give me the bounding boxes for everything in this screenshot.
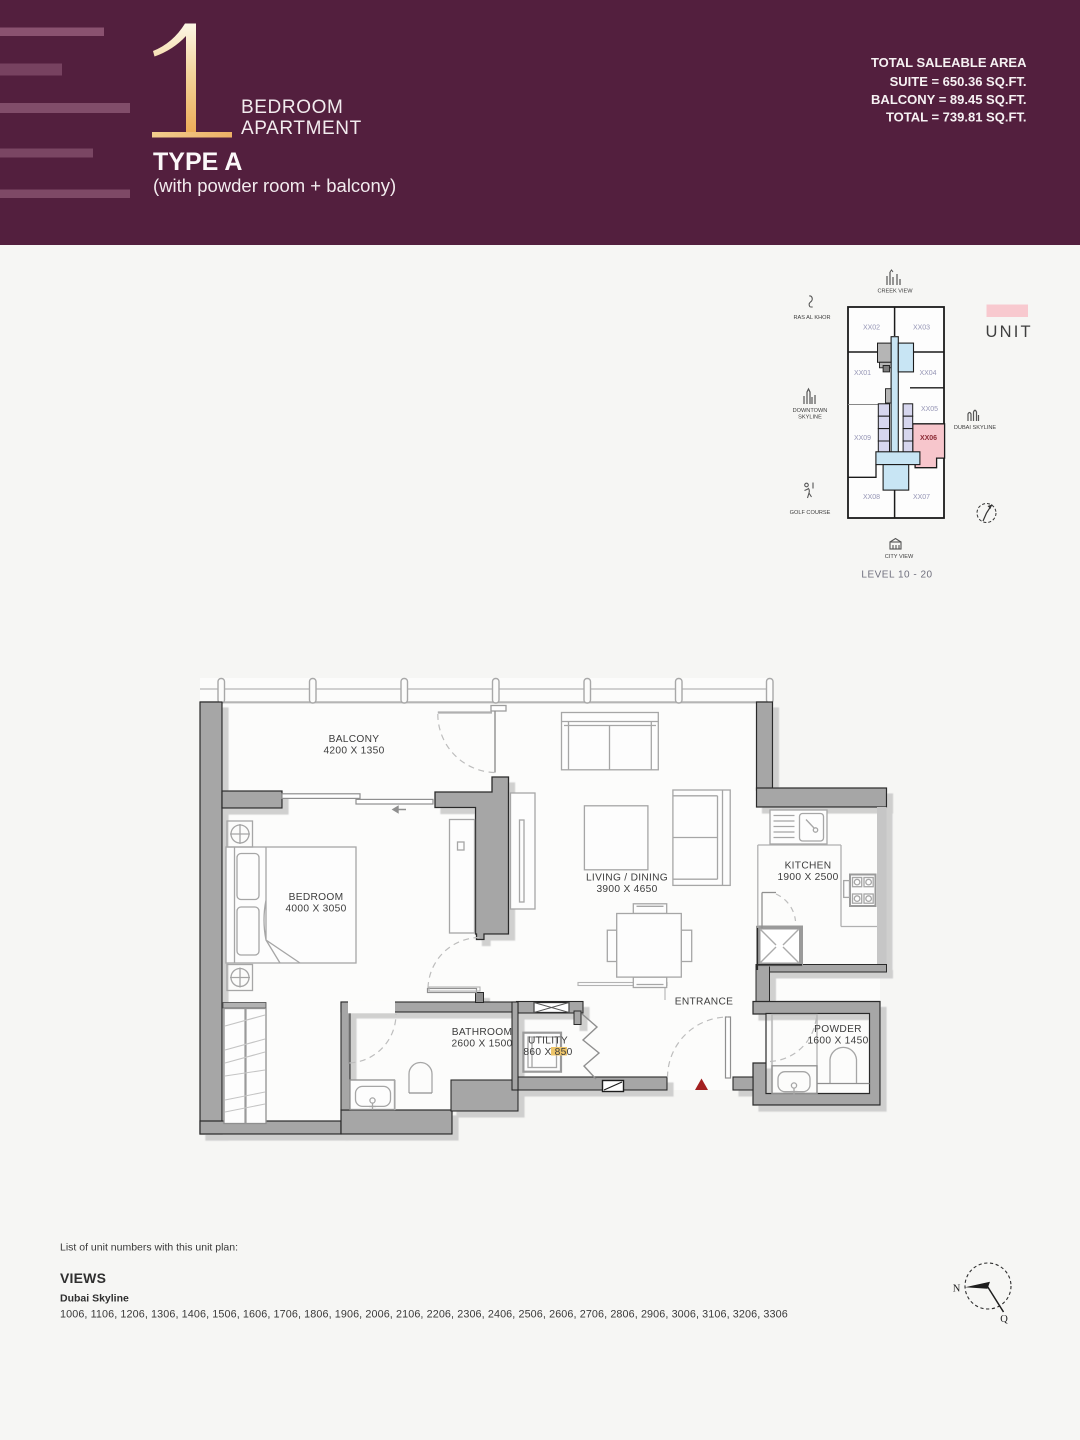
svg-text:LIVING / DINING: LIVING / DINING [586, 873, 668, 884]
svg-text:4200 X 1350: 4200 X 1350 [323, 746, 384, 757]
svg-text:XX06: XX06 [920, 435, 937, 442]
svg-text:List of unit numbers with this: List of unit numbers with this unit plan… [60, 1242, 238, 1254]
svg-text:CITY VIEW: CITY VIEW [885, 554, 914, 560]
svg-text:SUITE = 650.36 SQ.FT.: SUITE = 650.36 SQ.FT. [890, 74, 1027, 89]
svg-text:BEDROOM: BEDROOM [289, 892, 344, 903]
svg-text:1900 X 2500: 1900 X 2500 [777, 872, 838, 883]
svg-text:BEDROOM: BEDROOM [241, 97, 343, 118]
svg-text:4000 X 3050: 4000 X 3050 [285, 904, 346, 915]
svg-text:BALCONY: BALCONY [329, 734, 380, 745]
svg-text:CREEK VIEW: CREEK VIEW [877, 289, 913, 295]
svg-text:860 X 850: 860 X 850 [523, 1047, 572, 1058]
svg-text:DUBAI SKYLINE: DUBAI SKYLINE [954, 425, 997, 431]
svg-text:2600 X 1500: 2600 X 1500 [451, 1039, 512, 1050]
svg-text:UTILITY: UTILITY [528, 1036, 568, 1047]
svg-text:N: N [953, 1284, 961, 1295]
svg-text:(with powder room + balcony): (with powder room + balcony) [153, 175, 396, 196]
svg-text:XX05: XX05 [921, 406, 938, 413]
svg-text:XX08: XX08 [863, 494, 880, 501]
svg-text:XX03: XX03 [913, 325, 930, 332]
svg-text:ENTRANCE: ENTRANCE [675, 997, 733, 1008]
svg-text:TYPE A: TYPE A [153, 148, 242, 176]
svg-text:SKYLINE: SKYLINE [798, 415, 822, 421]
svg-text:TOTAL = 739.81 SQ.FT.: TOTAL = 739.81 SQ.FT. [886, 110, 1027, 125]
svg-text:3900 X 4650: 3900 X 4650 [596, 884, 657, 895]
svg-text:1600 X 1450: 1600 X 1450 [807, 1036, 868, 1047]
svg-text:XX07: XX07 [913, 494, 930, 501]
svg-text:BALCONY = 89.45 SQ.FT.: BALCONY = 89.45 SQ.FT. [871, 92, 1026, 107]
svg-text:1006, 1106, 1206, 1306, 1406,: 1006, 1106, 1206, 1306, 1406, 1506, 1606… [60, 1309, 788, 1321]
svg-text:KITCHEN: KITCHEN [785, 861, 832, 872]
svg-text:RAS AL KHOR: RAS AL KHOR [793, 315, 830, 321]
svg-text:LEVEL 10 - 20: LEVEL 10 - 20 [861, 570, 932, 581]
svg-text:XX09: XX09 [854, 435, 871, 442]
svg-text:Dubai Skyline: Dubai Skyline [60, 1293, 129, 1305]
svg-text:XX01: XX01 [854, 370, 871, 377]
svg-text:APARTMENT: APARTMENT [241, 118, 362, 139]
svg-text:UNIT: UNIT [986, 323, 1033, 341]
svg-text:POWDER: POWDER [814, 1024, 862, 1035]
svg-text:Q: Q [1000, 1314, 1008, 1325]
svg-text:XX02: XX02 [863, 325, 880, 332]
svg-text:VIEWS: VIEWS [60, 1270, 106, 1286]
svg-text:TOTAL SALEABLE AREA: TOTAL SALEABLE AREA [871, 55, 1027, 70]
svg-text:GOLF COURSE: GOLF COURSE [790, 510, 831, 516]
svg-text:DOWNTOWN: DOWNTOWN [793, 408, 828, 414]
svg-text:BATHROOM: BATHROOM [452, 1027, 513, 1038]
svg-text:XX04: XX04 [919, 370, 936, 377]
